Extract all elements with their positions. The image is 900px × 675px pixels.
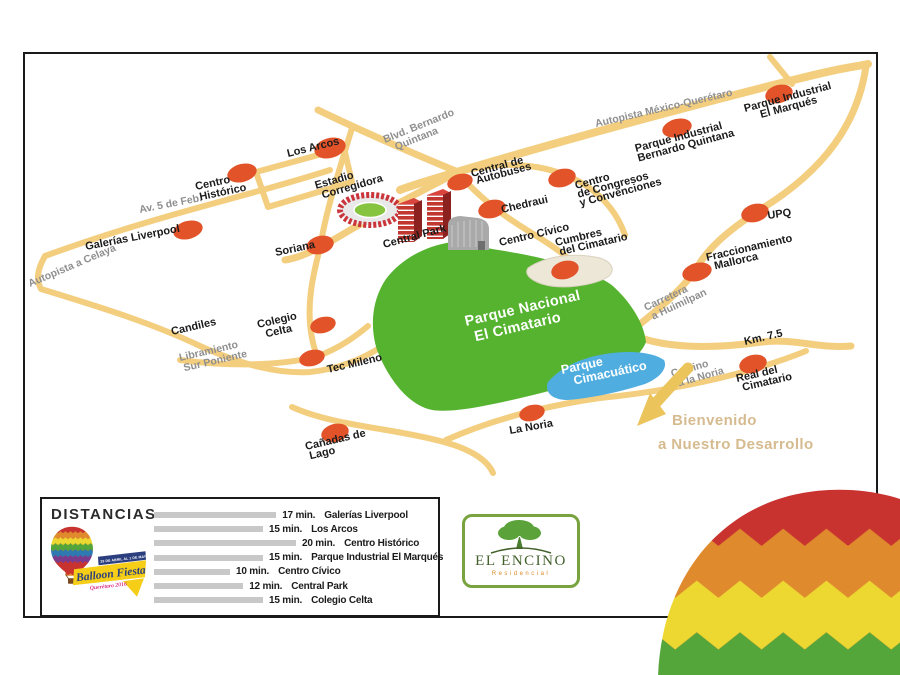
balloon-fiesta-logo-small: [48, 525, 148, 598]
distance-row: 15 min. Los Arcos: [154, 522, 443, 536]
distance-bar: [154, 512, 276, 518]
welcome-line1: Bienvenido: [658, 409, 814, 433]
label-la-noria: La Noria: [508, 417, 554, 437]
distance-time: 15 min.: [269, 595, 302, 606]
distance-bar: [154, 540, 296, 546]
distance-time: 12 min.: [249, 581, 282, 592]
distance-place: Central Park: [291, 581, 348, 592]
svg-text:Chedraui: Chedraui: [500, 194, 549, 216]
el-encino-logo: EL ENCINO Residencial: [462, 514, 580, 588]
distance-rows: 17 min. Galerías Liverpool 15 min. Los A…: [154, 508, 443, 607]
distance-place: Los Arcos: [311, 524, 358, 535]
balloon-fiesta-logo-large: [658, 490, 900, 675]
distances-title: DISTANCIAS: [51, 506, 157, 523]
oak-tree-icon: [489, 517, 553, 555]
distance-bar: [154, 569, 230, 575]
svg-text:Tec Mileno: Tec Mileno: [326, 352, 384, 376]
flyer-page: { "map": { "road_labels": [ {"l1": "Auto…: [0, 0, 900, 675]
svg-text:Candiles: Candiles: [170, 316, 217, 338]
distance-bar: [154, 555, 263, 561]
location-marker: [297, 347, 326, 369]
svg-text:UPQ: UPQ: [767, 207, 793, 222]
road-path: [629, 333, 851, 347]
distance-time: 15 min.: [269, 552, 302, 563]
distance-place: Parque Industrial El Marqués: [311, 552, 443, 563]
distance-row: 12 min. Central Park: [154, 579, 443, 593]
label-centro-de-congresos: Centrode Congresosy Convenciones: [574, 158, 663, 209]
distance-place: Centro Cívico: [278, 566, 340, 577]
welcome-text: Bienvenido a Nuestro Desarrollo: [658, 409, 814, 457]
distances-panel: DISTANCIAS 17 min. Galerías Liverpool 15…: [40, 497, 440, 617]
distance-row: 15 min. Colegio Celta: [154, 593, 443, 607]
el-encino-subtitle: Residencial: [492, 571, 551, 577]
label-chedraui: Chedraui: [500, 194, 549, 216]
road-path: [310, 248, 320, 356]
distance-row: 15 min. Parque Industrial El Marqués: [154, 551, 443, 565]
el-encino-name: EL ENCINO: [475, 553, 567, 570]
distance-time: 15 min.: [269, 524, 302, 535]
distance-time: 20 min.: [302, 538, 335, 549]
label-colegio-celta: ColegioCelta: [256, 310, 301, 342]
label-upq: UPQ: [767, 207, 793, 222]
road-label-carretera-a-huimilpan: Carreteraa Huimilpan: [642, 276, 708, 323]
distance-row: 17 min. Galerías Liverpool: [154, 508, 443, 522]
distance-place: Centro Histórico: [344, 538, 419, 549]
distance-place: Colegio Celta: [311, 595, 372, 606]
svg-text:La Noria: La Noria: [508, 417, 554, 437]
distance-row: 10 min. Centro Cívico: [154, 565, 443, 579]
road-label-blvd-bernardo-quintana: Blvd. BernardoQuintana: [382, 106, 460, 156]
label-candiles: Candiles: [170, 316, 217, 338]
distance-time: 17 min.: [282, 510, 315, 521]
distance-row: 20 min. Centro Histórico: [154, 536, 443, 550]
distance-bar: [154, 526, 263, 532]
label-tec-mileno: Tec Mileno: [326, 352, 384, 376]
distance-time: 10 min.: [236, 566, 269, 577]
welcome-line2: a Nuestro Desarrollo: [658, 433, 814, 457]
stadium-icon: [340, 195, 400, 225]
distance-bar: [154, 583, 243, 589]
distance-place: Galerías Liverpool: [324, 510, 408, 521]
civic-center-building-icon: [448, 216, 489, 250]
distance-bar: [154, 597, 263, 603]
